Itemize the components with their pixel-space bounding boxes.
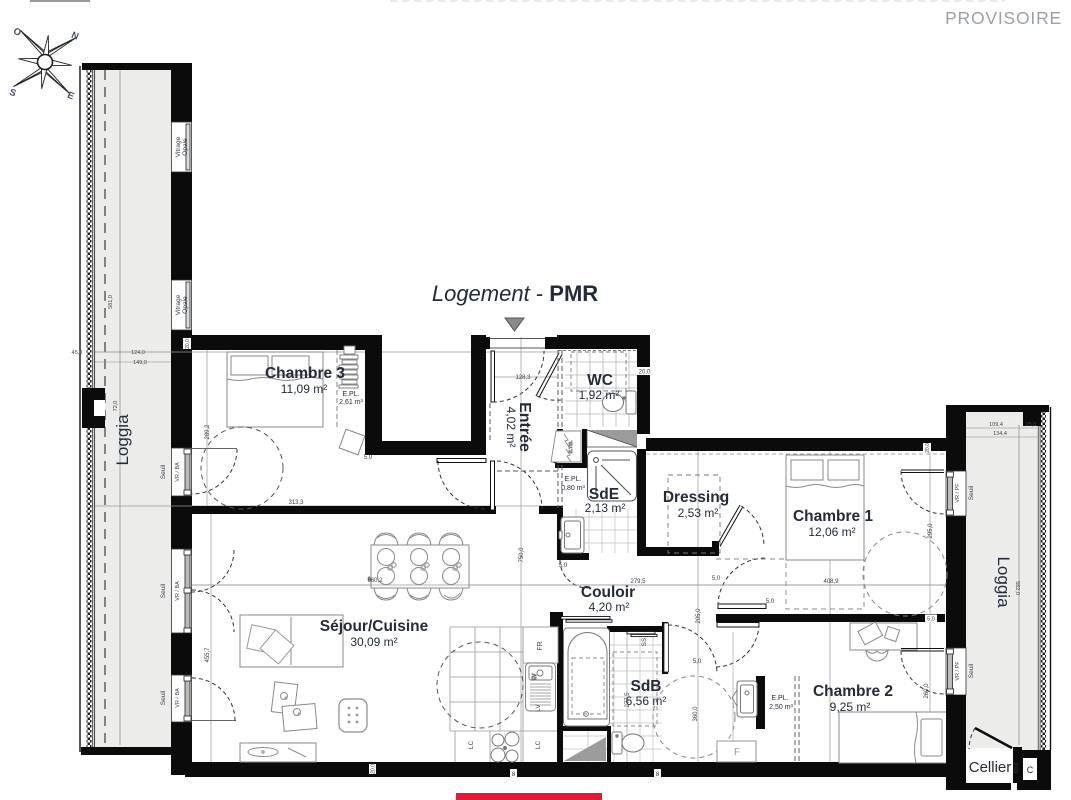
svg-text:VR / PF: VR / PF <box>955 661 961 681</box>
svg-text:2,50 m³: 2,50 m³ <box>769 704 793 711</box>
svg-text:Vitrage: Vitrage <box>175 294 182 315</box>
svg-text:5,0: 5,0 <box>927 617 935 623</box>
svg-text:5,0: 5,0 <box>712 576 721 582</box>
svg-text:Logement - PMR: Logement - PMR <box>432 281 598 306</box>
svg-text:Seuil: Seuil <box>160 583 167 598</box>
svg-text:581,0: 581,0 <box>108 295 114 309</box>
svg-text:Chambre 1: Chambre 1 <box>793 508 873 525</box>
svg-text:109,4: 109,4 <box>989 422 1003 428</box>
svg-text:5,0: 5,0 <box>364 455 373 461</box>
svg-text:5,0: 5,0 <box>766 599 775 605</box>
svg-text:Couloir: Couloir <box>581 584 635 601</box>
svg-text:660,2: 660,2 <box>367 578 383 584</box>
svg-text:45,0: 45,0 <box>72 350 83 356</box>
svg-text:Loggia: Loggia <box>113 414 132 466</box>
svg-text:Chambre 2: Chambre 2 <box>813 683 893 700</box>
svg-text:WC: WC <box>587 372 613 389</box>
svg-text:SdB: SdB <box>631 678 662 695</box>
svg-text:20,0: 20,0 <box>185 339 191 349</box>
svg-text:EV: EV <box>532 673 538 680</box>
svg-text:30,09 m²: 30,09 m² <box>350 635 397 649</box>
svg-text:VR / PF: VR / PF <box>955 483 961 503</box>
svg-text:4,02 m²: 4,02 m² <box>504 407 518 448</box>
svg-text:VR / BA: VR / BA <box>175 688 181 708</box>
svg-text:582,0: 582,0 <box>1014 581 1020 595</box>
svg-text:205,0: 205,0 <box>696 608 702 624</box>
svg-text:Seuil: Seuil <box>160 464 167 479</box>
svg-text:6,56 m²: 6,56 m² <box>626 694 667 708</box>
svg-text:2,61 m³: 2,61 m³ <box>339 399 363 406</box>
svg-text:Séjour/Cuisine: Séjour/Cuisine <box>320 618 429 635</box>
svg-text:128,3: 128,3 <box>515 375 531 381</box>
svg-text:72,0: 72,0 <box>113 401 119 412</box>
svg-text:Seuil: Seuil <box>968 485 975 500</box>
svg-text:360,0: 360,0 <box>693 706 699 722</box>
svg-text:LC: LC <box>468 741 475 750</box>
svg-text:Dressing: Dressing <box>663 489 729 506</box>
svg-text:Opale: Opale <box>182 138 189 156</box>
svg-text:60,0: 60,0 <box>1014 763 1020 774</box>
svg-text:LV: LV <box>535 704 542 712</box>
svg-text:2,53 m²: 2,53 m² <box>678 506 719 520</box>
svg-text:C: C <box>1027 765 1034 775</box>
svg-text:Opale: Opale <box>182 296 189 314</box>
svg-text:Chambre 3: Chambre 3 <box>265 365 345 382</box>
svg-text:134,4: 134,4 <box>993 431 1007 437</box>
svg-text:Cellier: Cellier <box>969 759 1012 776</box>
svg-text:VR / BA: VR / BA <box>175 462 181 482</box>
svg-text:SS: SS <box>641 637 648 646</box>
svg-text:289,2: 289,2 <box>205 424 211 440</box>
svg-text:FR: FR <box>537 641 544 650</box>
svg-text:295,0: 295,0 <box>928 523 934 539</box>
svg-text:4,20 m²: 4,20 m² <box>589 600 630 614</box>
svg-text:12,06 m²: 12,06 m² <box>808 525 855 539</box>
svg-text:0,80 m³: 0,80 m³ <box>561 485 585 492</box>
svg-text:E.PL.: E.PL. <box>564 476 581 483</box>
svg-text:20,0: 20,0 <box>371 764 377 774</box>
svg-text:1,92 m²: 1,92 m² <box>579 388 620 402</box>
svg-text:25,0: 25,0 <box>1026 422 1037 428</box>
svg-text:20,0: 20,0 <box>925 443 931 453</box>
svg-text:Vitrage: Vitrage <box>175 136 182 157</box>
svg-text:Seuil: Seuil <box>160 690 167 705</box>
svg-text:750,0: 750,0 <box>519 547 525 563</box>
svg-text:Loggia: Loggia <box>994 556 1013 608</box>
svg-text:LC: LC <box>535 741 542 750</box>
svg-text:313,3: 313,3 <box>288 500 304 506</box>
svg-text:5,0: 5,0 <box>693 659 702 665</box>
svg-text:E.TEL: E.TEL <box>568 440 573 453</box>
svg-text:VR / BA: VR / BA <box>175 581 181 601</box>
svg-text:2,13 m²: 2,13 m² <box>585 501 626 515</box>
svg-text:11,09 m²: 11,09 m² <box>281 382 327 396</box>
svg-text:Seuil: Seuil <box>968 663 975 678</box>
svg-text:F: F <box>734 747 740 758</box>
svg-text:408,9: 408,9 <box>823 579 839 585</box>
svg-text:455,7: 455,7 <box>205 647 211 663</box>
svg-text:124,0: 124,0 <box>131 350 145 356</box>
svg-text:9,25 m²: 9,25 m² <box>830 700 871 714</box>
svg-text:149,0: 149,0 <box>133 360 147 366</box>
svg-text:E.PL.: E.PL. <box>771 695 788 702</box>
svg-text:E.PL.: E.PL. <box>342 391 359 398</box>
svg-text:PROVISOIRE: PROVISOIRE <box>945 8 1062 28</box>
svg-text:20,0: 20,0 <box>639 370 651 376</box>
